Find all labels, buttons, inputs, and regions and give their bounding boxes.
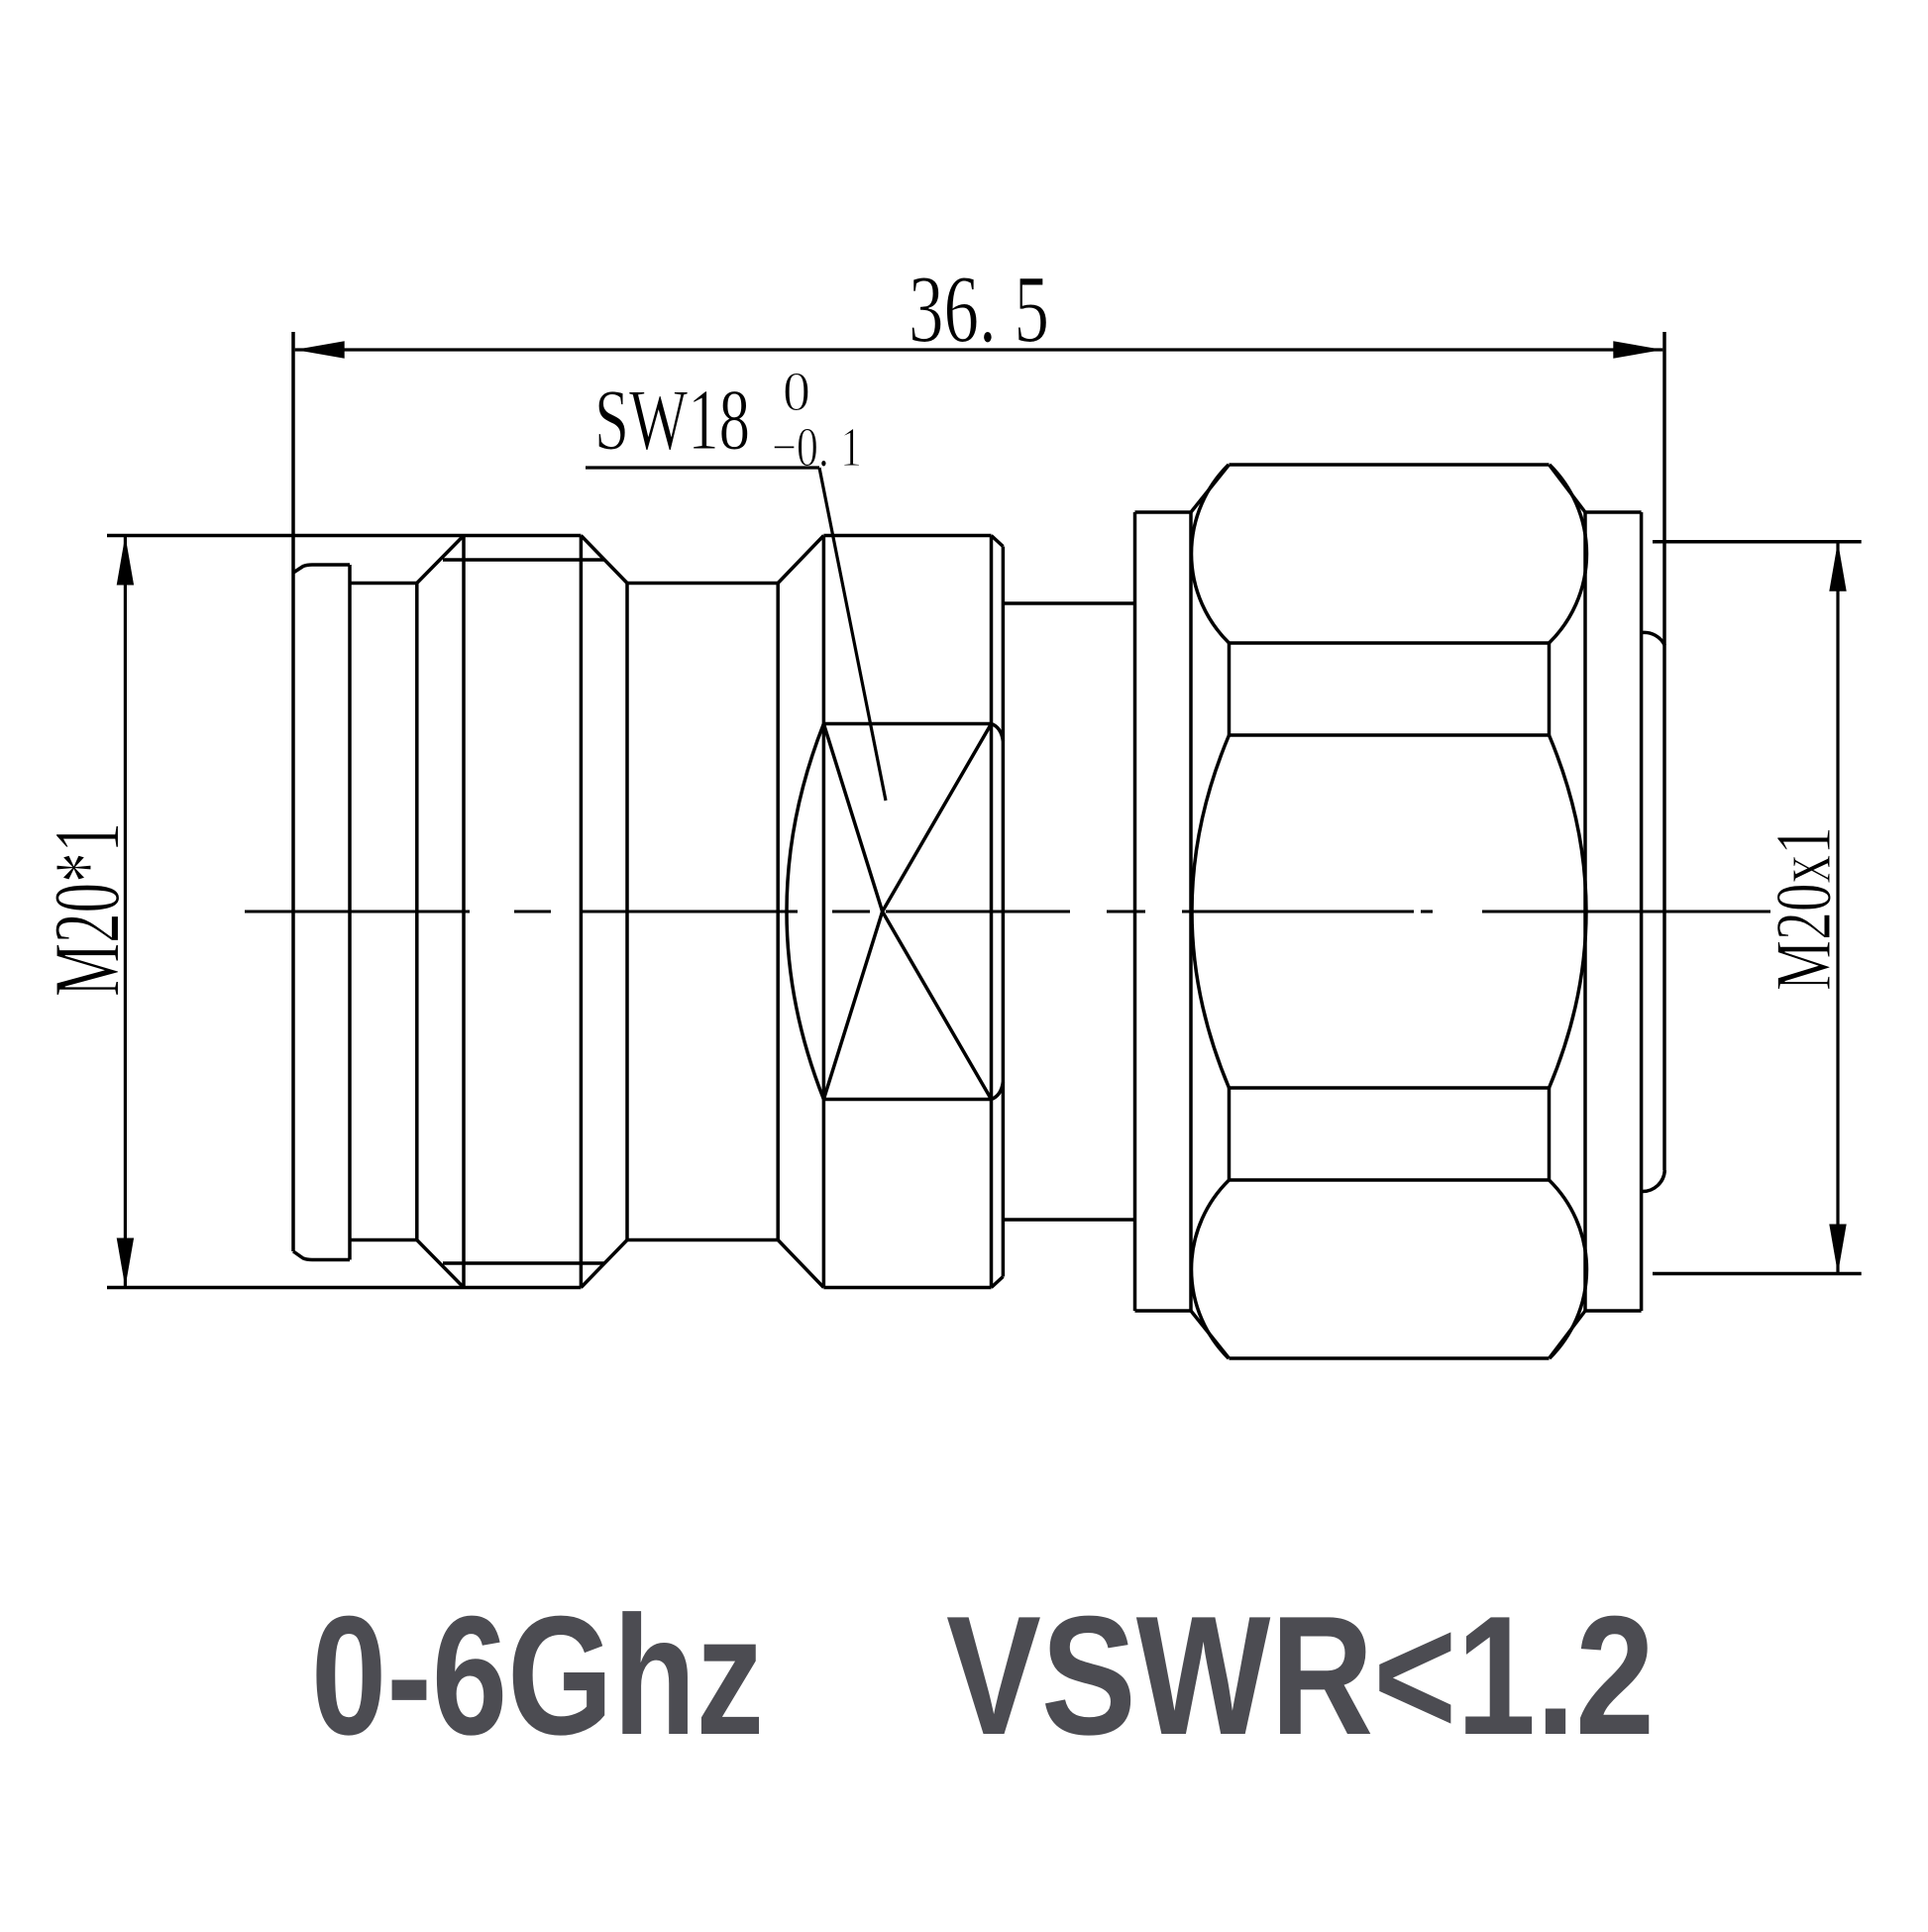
svg-text:SW18: SW18 bbox=[594, 373, 750, 469]
svg-text:−0. 1: −0. 1 bbox=[772, 417, 862, 479]
svg-text:36. 5: 36. 5 bbox=[909, 257, 1049, 363]
svg-text:M20*1: M20*1 bbox=[35, 822, 140, 997]
svg-text:0: 0 bbox=[783, 362, 810, 423]
svg-text:M20x1: M20x1 bbox=[1761, 826, 1848, 991]
svg-text:0-6Ghz: 0-6Ghz bbox=[311, 1581, 764, 1771]
svg-text:VSWR<1.2: VSWR<1.2 bbox=[946, 1581, 1655, 1771]
